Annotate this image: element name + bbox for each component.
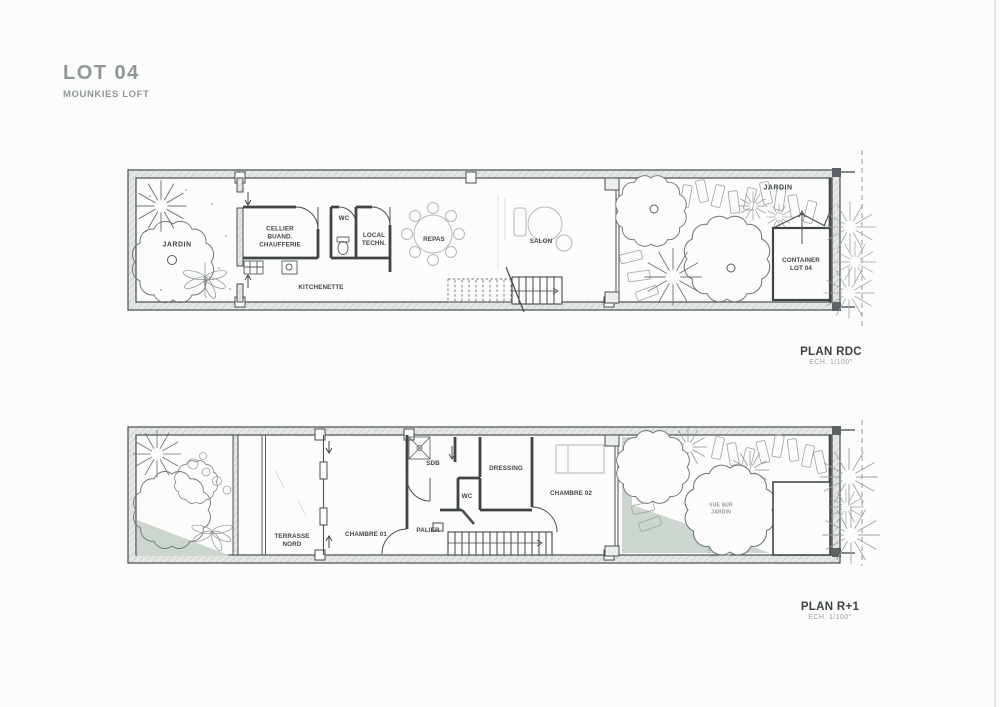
room-label-wc-r1: WC bbox=[462, 493, 473, 501]
room-label-chambre02: CHAMBRE 02 bbox=[550, 490, 592, 498]
room-label-vue-jardin: VUE SUR JARDIN bbox=[709, 503, 733, 516]
room-label-repas: REPAS bbox=[423, 236, 445, 244]
caption-plan-r1-scale: ECH. 1/100° bbox=[801, 614, 859, 621]
room-label-wc-rdc: WC bbox=[339, 215, 350, 223]
room-label-jardin-right: JARDIN bbox=[763, 183, 792, 192]
tree-canopy bbox=[617, 431, 690, 504]
room-label-salon: SALON bbox=[530, 238, 553, 246]
room-label-palier: PALIER bbox=[416, 527, 439, 535]
room-label-jardin-left: JARDIN bbox=[162, 240, 191, 249]
caption-plan-r1: PLAN R+1 ECH. 1/100° bbox=[801, 601, 859, 621]
room-label-local-tech: LOCAL TECHN. bbox=[362, 232, 386, 248]
drawing-sheet: LOT 04 MOUNKIES LOFT bbox=[0, 0, 1000, 707]
caption-plan-rdc-title: PLAN RDC bbox=[800, 346, 862, 358]
caption-plan-rdc: PLAN RDC ECH. 1/100° bbox=[800, 346, 862, 366]
room-label-dressing: DRESSING bbox=[489, 465, 523, 473]
tree-canopy bbox=[684, 216, 769, 301]
caption-plan-r1-title: PLAN R+1 bbox=[801, 601, 859, 613]
caption-plan-rdc-scale: ECH. 1/100° bbox=[800, 359, 862, 366]
plan-r1-drawing bbox=[128, 420, 880, 566]
terrace-wall bbox=[233, 435, 238, 555]
plan-rdc-drawing bbox=[128, 150, 876, 328]
room-label-container: CONTAINER LOT 04 bbox=[782, 257, 820, 273]
room-label-kitchenette: KITCHENETTE bbox=[298, 284, 343, 292]
container-roof-below bbox=[773, 482, 830, 555]
scan-edge-artifact bbox=[994, 0, 996, 707]
room-label-cellier: CELLIER BUAND. CHAUFFERIE bbox=[259, 226, 301, 251]
room-label-sdb: SDB bbox=[426, 460, 440, 468]
room-label-chambre01: CHAMBRE 01 bbox=[345, 531, 387, 539]
room-label-terrasse: TERRASSE NORD bbox=[274, 533, 309, 549]
